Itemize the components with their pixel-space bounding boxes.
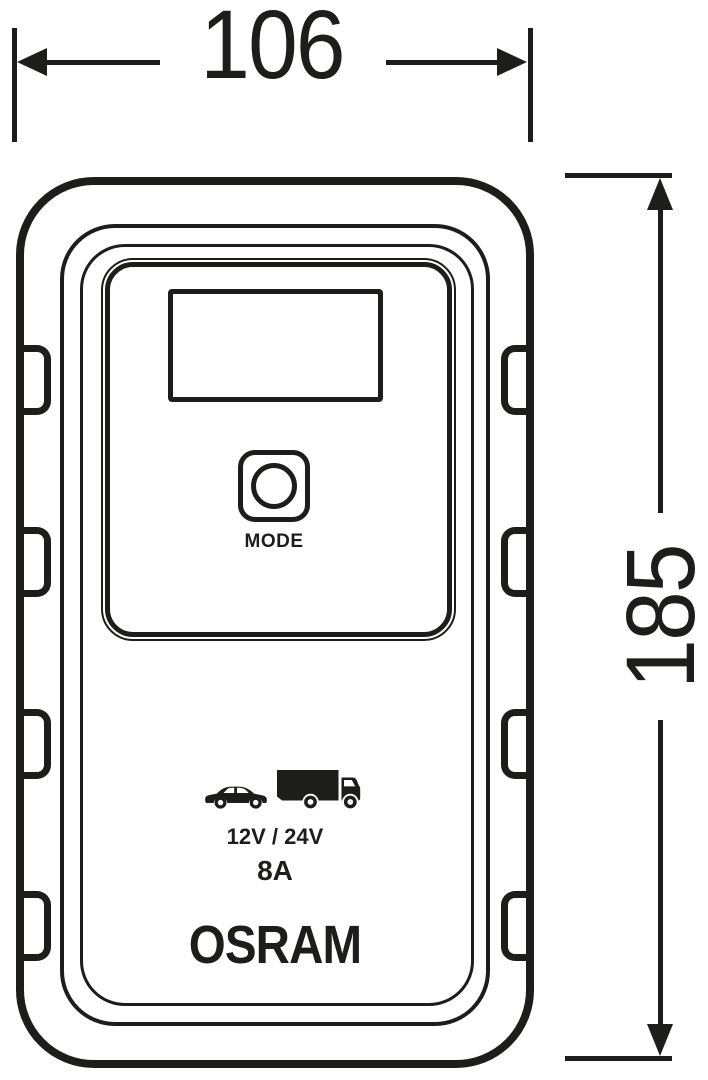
width-dim-tick-right [528,28,533,142]
height-dim-line-lower [658,720,663,1024]
vehicle-icons-row [197,766,367,810]
truck-icon [274,767,362,810]
height-dim-label-wrap: 185 [560,525,708,709]
left-clip-2 [22,527,51,597]
voltage-rating-label: 12V / 24V [125,824,425,850]
height-dim-arrow-up-icon [647,178,673,210]
display-screen [168,289,383,402]
current-rating-label: 8A [125,855,425,887]
right-clip-3 [501,709,530,779]
left-clip-1 [22,345,51,415]
left-clip-3 [22,709,51,779]
mode-button [238,450,310,522]
width-dim-label: 106 [180,0,364,93]
mode-button-ring-icon [251,463,297,509]
height-dim-line-upper [658,208,663,513]
height-dim-label: 185 [612,545,708,688]
right-clip-2 [501,527,530,597]
car-icon [203,782,269,809]
width-dim-arrow-right-icon [497,48,527,76]
right-clip-4 [501,891,530,961]
mode-button-label: MODE [124,531,424,553]
left-clip-4 [22,891,51,961]
width-dim-line-right [386,60,500,65]
width-dim-tick-left [12,28,17,142]
technical-drawing-canvas: 106 185 MODE [0,0,708,1080]
osram-logo: OSRAM [143,918,407,972]
width-dim-arrow-left-icon [17,48,47,76]
right-clip-1 [501,345,530,415]
height-dim-tick-bottom [565,1056,672,1061]
width-dim-line-left [44,60,160,65]
height-dim-arrow-down-icon [647,1024,673,1056]
